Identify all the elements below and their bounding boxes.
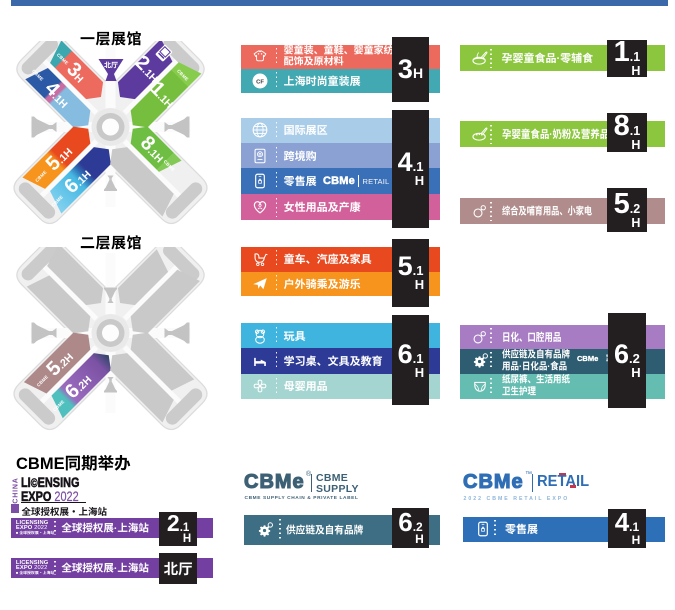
svg-text:CF: CF <box>256 79 264 85</box>
svg-text:北厅: 北厅 <box>104 61 118 71</box>
